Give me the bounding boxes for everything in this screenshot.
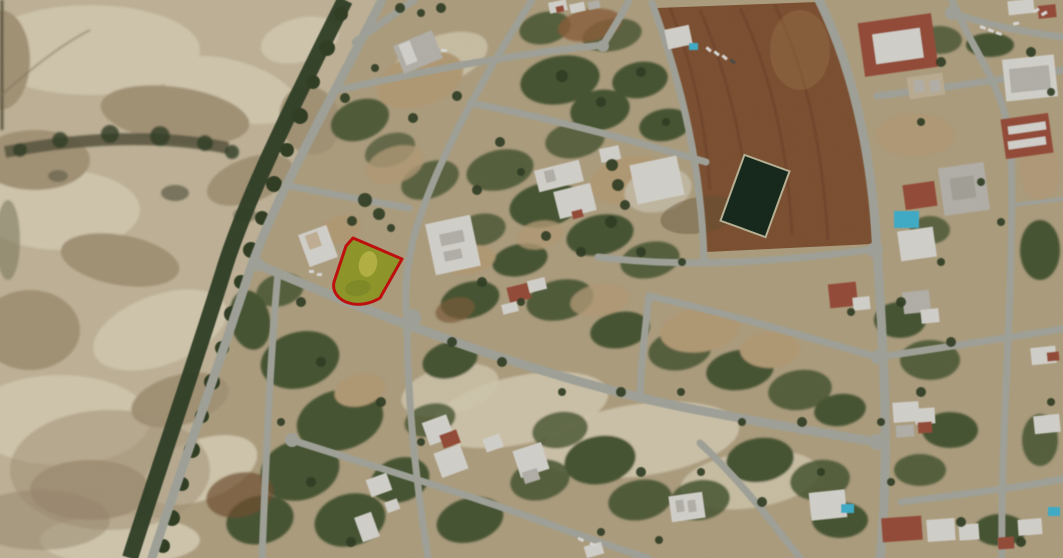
aerial-photo xyxy=(0,0,1063,558)
photo-grain xyxy=(0,0,1063,558)
satellite-map xyxy=(0,0,1063,558)
